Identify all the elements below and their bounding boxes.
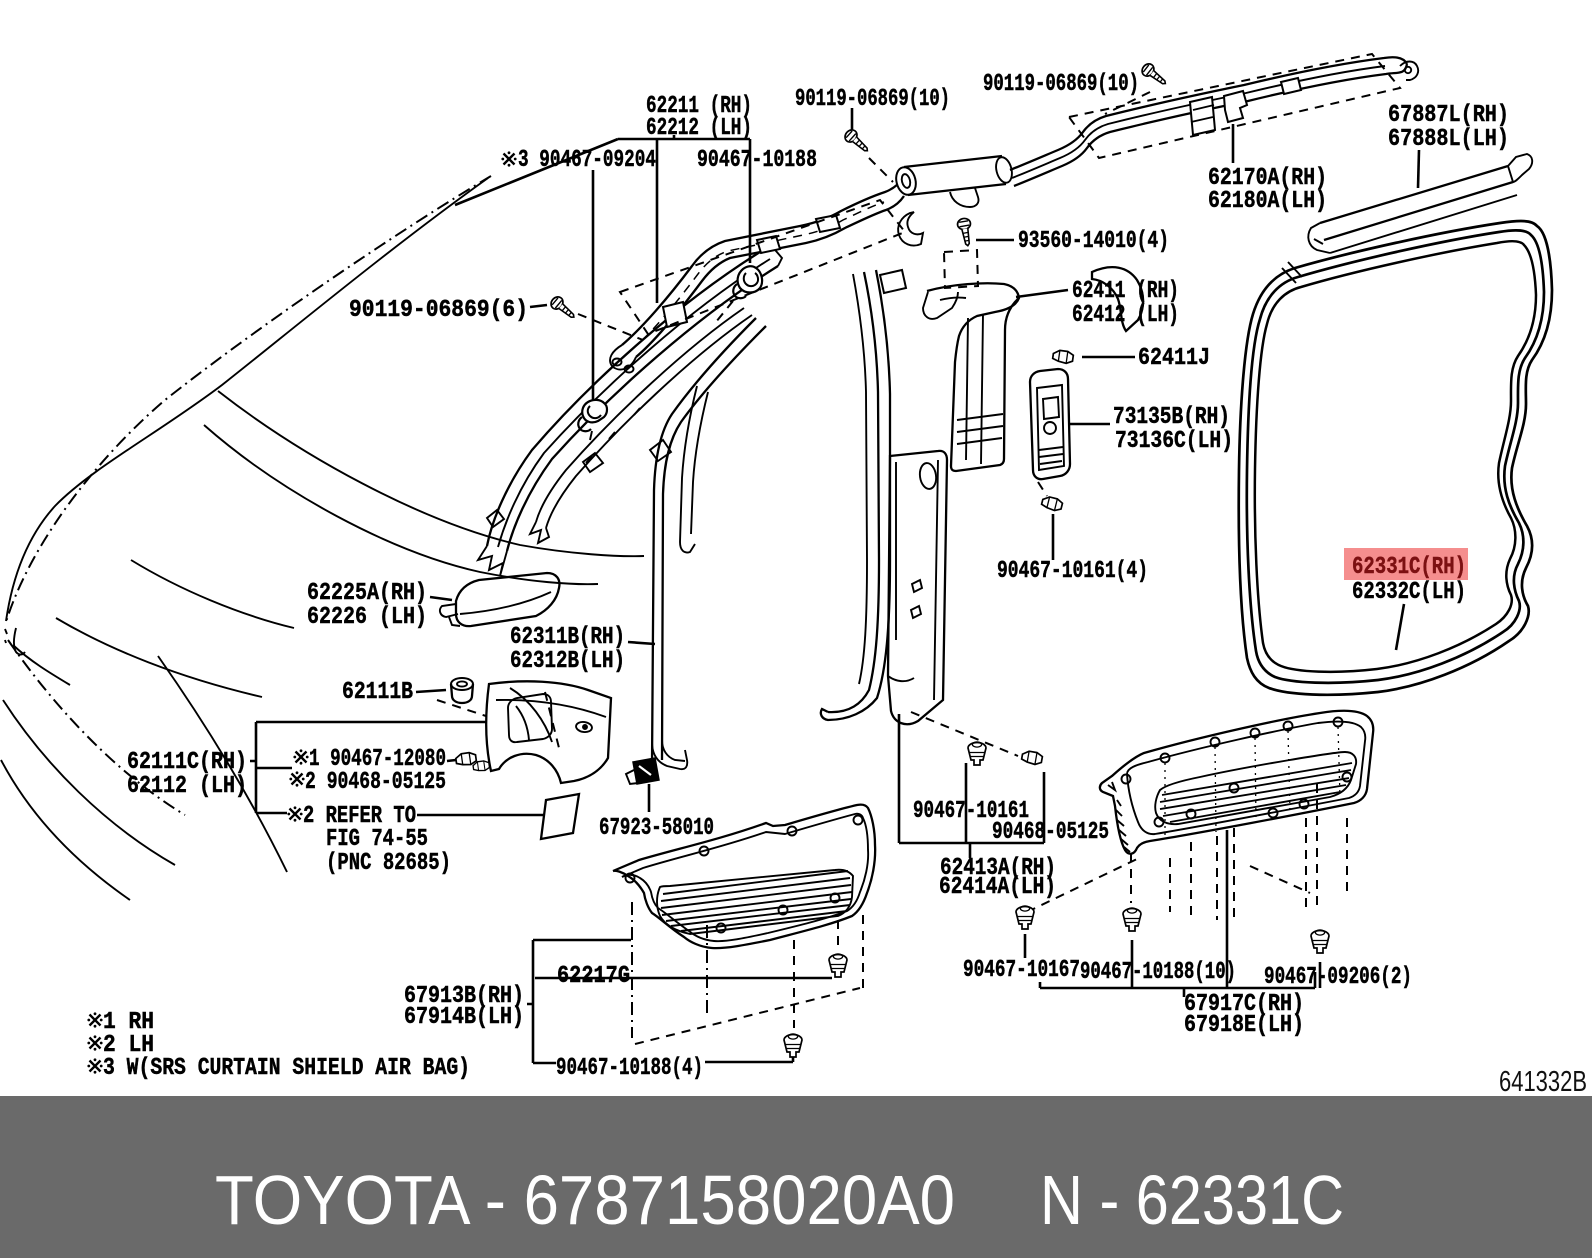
svg-text:62226 (LH): 62226 (LH) (307, 604, 427, 631)
svg-text:62414A(LH): 62414A(LH) (939, 874, 1056, 901)
svg-text:90468-05125: 90468-05125 (992, 819, 1109, 846)
svg-text:(PNC 82685): (PNC 82685) (326, 850, 451, 877)
svg-text:62311B(RH): 62311B(RH) (510, 624, 625, 651)
svg-text:3 90467-09204: 3 90467-09204 (518, 147, 656, 174)
svg-text:62412 (LH): 62412 (LH) (1072, 302, 1179, 329)
svg-text:90467-10188: 90467-10188 (697, 147, 817, 174)
svg-text:90467-09206(2): 90467-09206(2) (1264, 964, 1412, 991)
svg-text:62212 (LH): 62212 (LH) (646, 115, 752, 142)
svg-text:62180A(LH): 62180A(LH) (1208, 188, 1327, 215)
svg-text:90467-10161(4): 90467-10161(4) (997, 558, 1148, 585)
svg-text:90119-06869(6): 90119-06869(6) (349, 297, 528, 324)
svg-text:3 W(SRS CURTAIN SHIELD AIR BAG: 3 W(SRS CURTAIN SHIELD AIR BAG) (103, 1055, 470, 1082)
svg-text:62217G: 62217G (557, 963, 630, 990)
svg-text:73136C(LH): 73136C(LH) (1115, 428, 1233, 455)
svg-text:FIG 74-55: FIG 74-55 (326, 826, 428, 853)
svg-text:67887L(RH): 67887L(RH) (1388, 102, 1509, 129)
svg-text:67923-58010: 67923-58010 (599, 815, 714, 842)
svg-text:62225A(RH): 62225A(RH) (307, 580, 427, 607)
svg-text:62111B: 62111B (342, 679, 413, 706)
svg-text:67918E(LH): 67918E(LH) (1184, 1012, 1304, 1039)
svg-text:N - 62331C: N - 62331C (1040, 1161, 1344, 1239)
svg-text:90467-10188(10): 90467-10188(10) (1080, 959, 1236, 986)
svg-text:62312B(LH): 62312B(LH) (510, 648, 625, 675)
svg-text:93560-14010(4): 93560-14010(4) (1018, 228, 1169, 255)
svg-text:90119-06869(10): 90119-06869(10) (983, 71, 1139, 98)
svg-text:62411 (RH): 62411 (RH) (1072, 278, 1179, 305)
svg-text:90467-10167: 90467-10167 (963, 957, 1080, 984)
svg-text:73135B(RH): 73135B(RH) (1113, 404, 1230, 431)
svg-text:641332B: 641332B (1499, 1066, 1587, 1098)
svg-text:62331C(RH): 62331C(RH) (1352, 554, 1466, 581)
svg-text:67914B(LH): 67914B(LH) (404, 1004, 524, 1031)
svg-text:62411J: 62411J (1138, 345, 1210, 372)
svg-text:90467-10188(4): 90467-10188(4) (556, 1055, 703, 1082)
svg-text:TOYOTA - 6787158020A0: TOYOTA - 6787158020A0 (215, 1161, 955, 1239)
svg-text:90119-06869(10): 90119-06869(10) (795, 86, 950, 113)
svg-text:62111C(RH): 62111C(RH) (127, 749, 247, 776)
svg-text:62332C(LH): 62332C(LH) (1352, 579, 1466, 606)
svg-text:2 90468-05125: 2 90468-05125 (305, 769, 446, 796)
svg-text:62112 (LH): 62112 (LH) (127, 773, 247, 800)
svg-text:67888L(LH): 67888L(LH) (1388, 126, 1509, 153)
